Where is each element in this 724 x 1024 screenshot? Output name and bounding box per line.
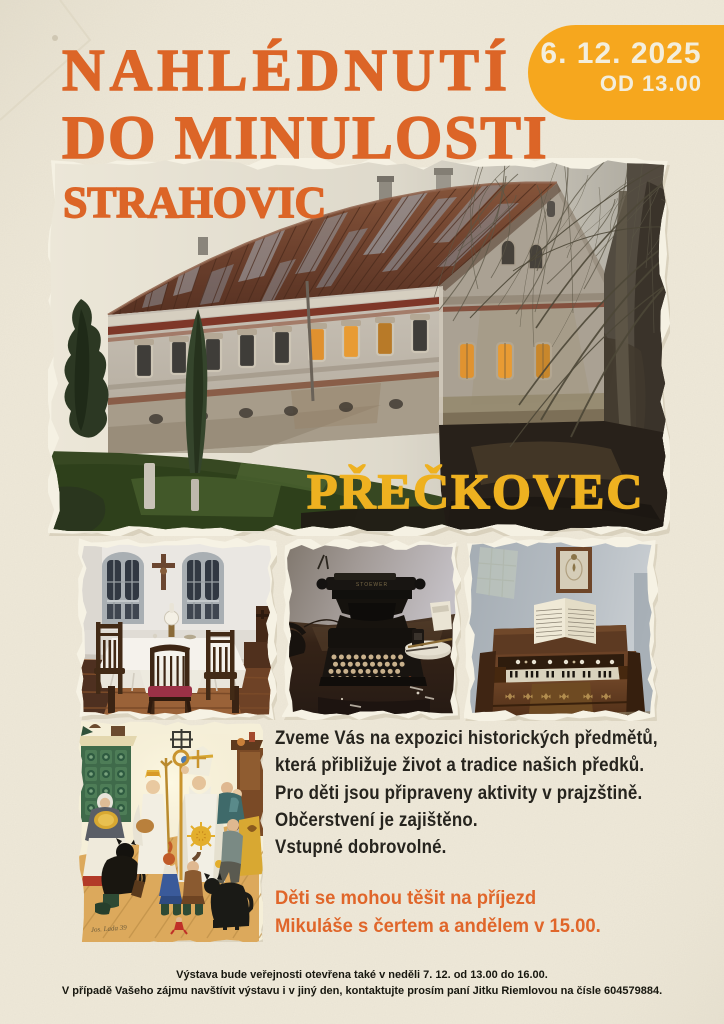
- svg-text:STOEWER: STOEWER: [356, 582, 388, 588]
